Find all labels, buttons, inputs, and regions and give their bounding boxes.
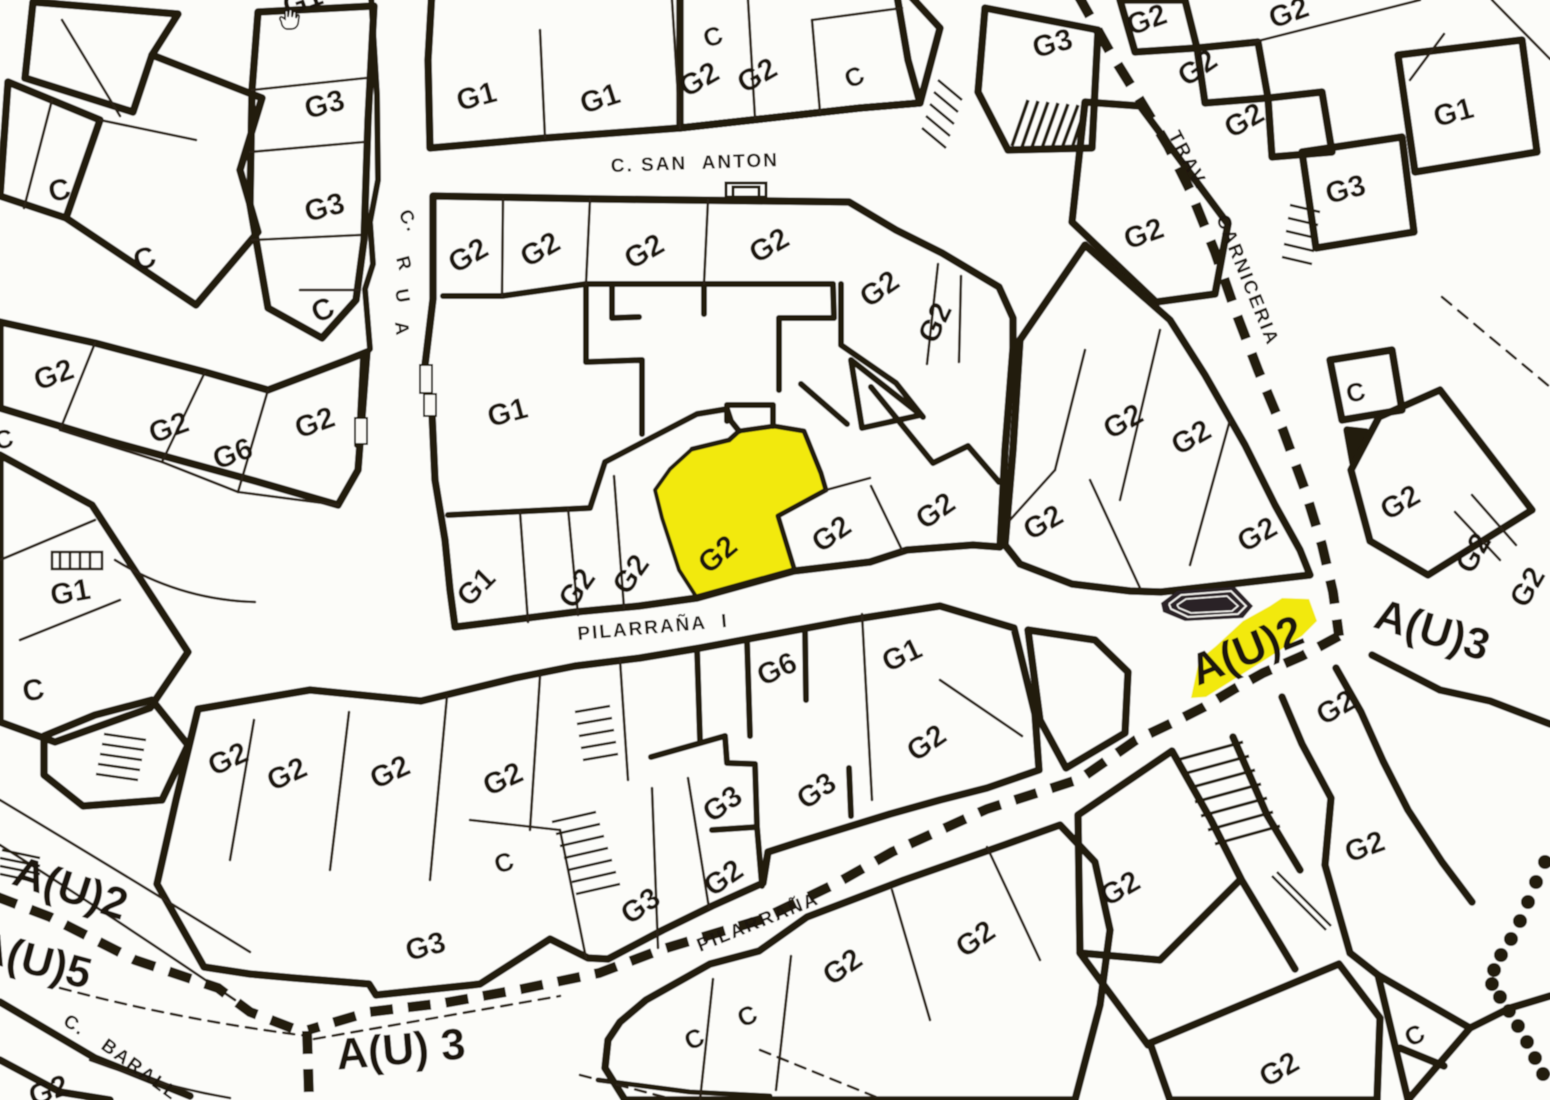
svg-text:A: A: [390, 320, 413, 338]
svg-text:G1: G1: [48, 573, 93, 612]
